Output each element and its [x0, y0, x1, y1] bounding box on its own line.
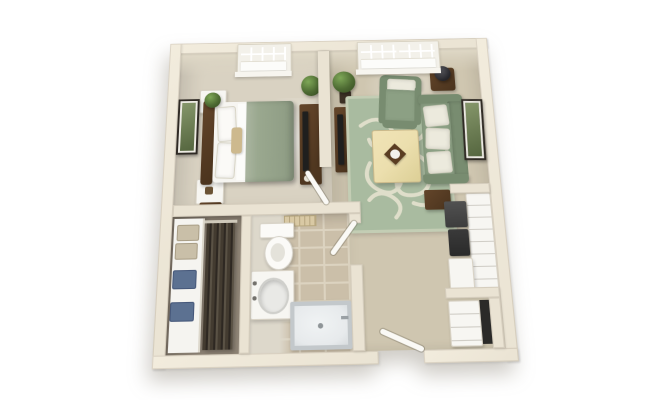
- shower-drain: [318, 323, 323, 329]
- bedroom-wall-art: [176, 99, 200, 155]
- armchair-arm-left: [378, 85, 386, 123]
- plan-shadow-wrapper: [0, 0, 666, 400]
- hanging-clothes: [202, 222, 235, 350]
- sofa-pillow-3: [426, 151, 453, 175]
- living-window-glass-right: [399, 44, 435, 58]
- bedroom-window-sill: [235, 71, 292, 77]
- living-window-glass-left: [361, 45, 397, 59]
- floor-plan-canvas: [0, 0, 666, 400]
- storage-bin-tan-2: [175, 243, 198, 260]
- oven: [448, 229, 471, 256]
- wall-bottom-right-segment: [423, 348, 519, 364]
- bed-duvet: [245, 101, 294, 182]
- alcove-dresser: [448, 300, 483, 347]
- apartment-floor-plan: [152, 38, 519, 370]
- wall-bathroom-right-top: [349, 213, 361, 223]
- bedroom-window-glass: [241, 47, 286, 62]
- storage-bin-blue-1: [172, 270, 197, 290]
- sofa-pillow-2: [425, 128, 450, 151]
- microwave: [444, 201, 468, 227]
- living-wall-art: [461, 99, 486, 160]
- wall-closet-bathroom: [239, 215, 252, 353]
- bedroom-window-shade: [241, 60, 286, 70]
- bedroom-tv: [302, 111, 308, 171]
- shower-faucet: [341, 316, 348, 319]
- bed-accent-bolster: [231, 127, 242, 153]
- living-window-shade: [361, 58, 436, 69]
- nightstand-accessory: [205, 187, 213, 195]
- storage-bin-blue-2: [169, 302, 194, 322]
- armchair: [378, 75, 421, 131]
- wall-kitchen-top: [449, 183, 490, 194]
- living-wall-art-canvas: [463, 101, 484, 158]
- armchair-front: [382, 120, 417, 130]
- coffee-table-bowl: [390, 149, 400, 159]
- kitchen-base-cabinet: [448, 258, 475, 290]
- bedroom-wall-art-canvas: [178, 101, 198, 153]
- armchair-seat: [382, 89, 417, 123]
- sofa-pillow-1: [423, 104, 450, 127]
- storage-bin-tan-1: [176, 225, 199, 242]
